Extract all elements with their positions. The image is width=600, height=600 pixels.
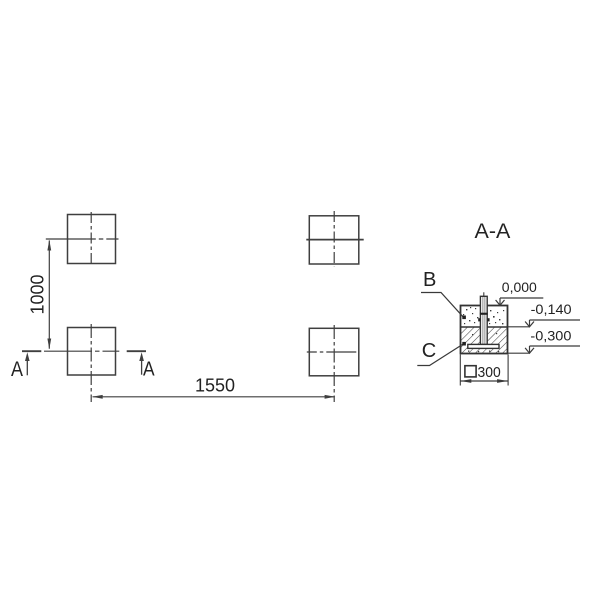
svg-text:C: C xyxy=(422,340,436,362)
svg-text:A-A: A-A xyxy=(475,219,512,243)
svg-text:1000: 1000 xyxy=(28,274,48,314)
svg-text:-0,140: -0,140 xyxy=(531,301,572,317)
svg-text:0,000: 0,000 xyxy=(502,279,537,295)
svg-text:1550: 1550 xyxy=(195,376,235,396)
svg-text:B: B xyxy=(423,269,436,291)
svg-text:-0,300: -0,300 xyxy=(530,327,571,343)
svg-text:300: 300 xyxy=(478,364,501,381)
svg-text:A: A xyxy=(11,357,24,381)
svg-text:A: A xyxy=(143,358,155,381)
